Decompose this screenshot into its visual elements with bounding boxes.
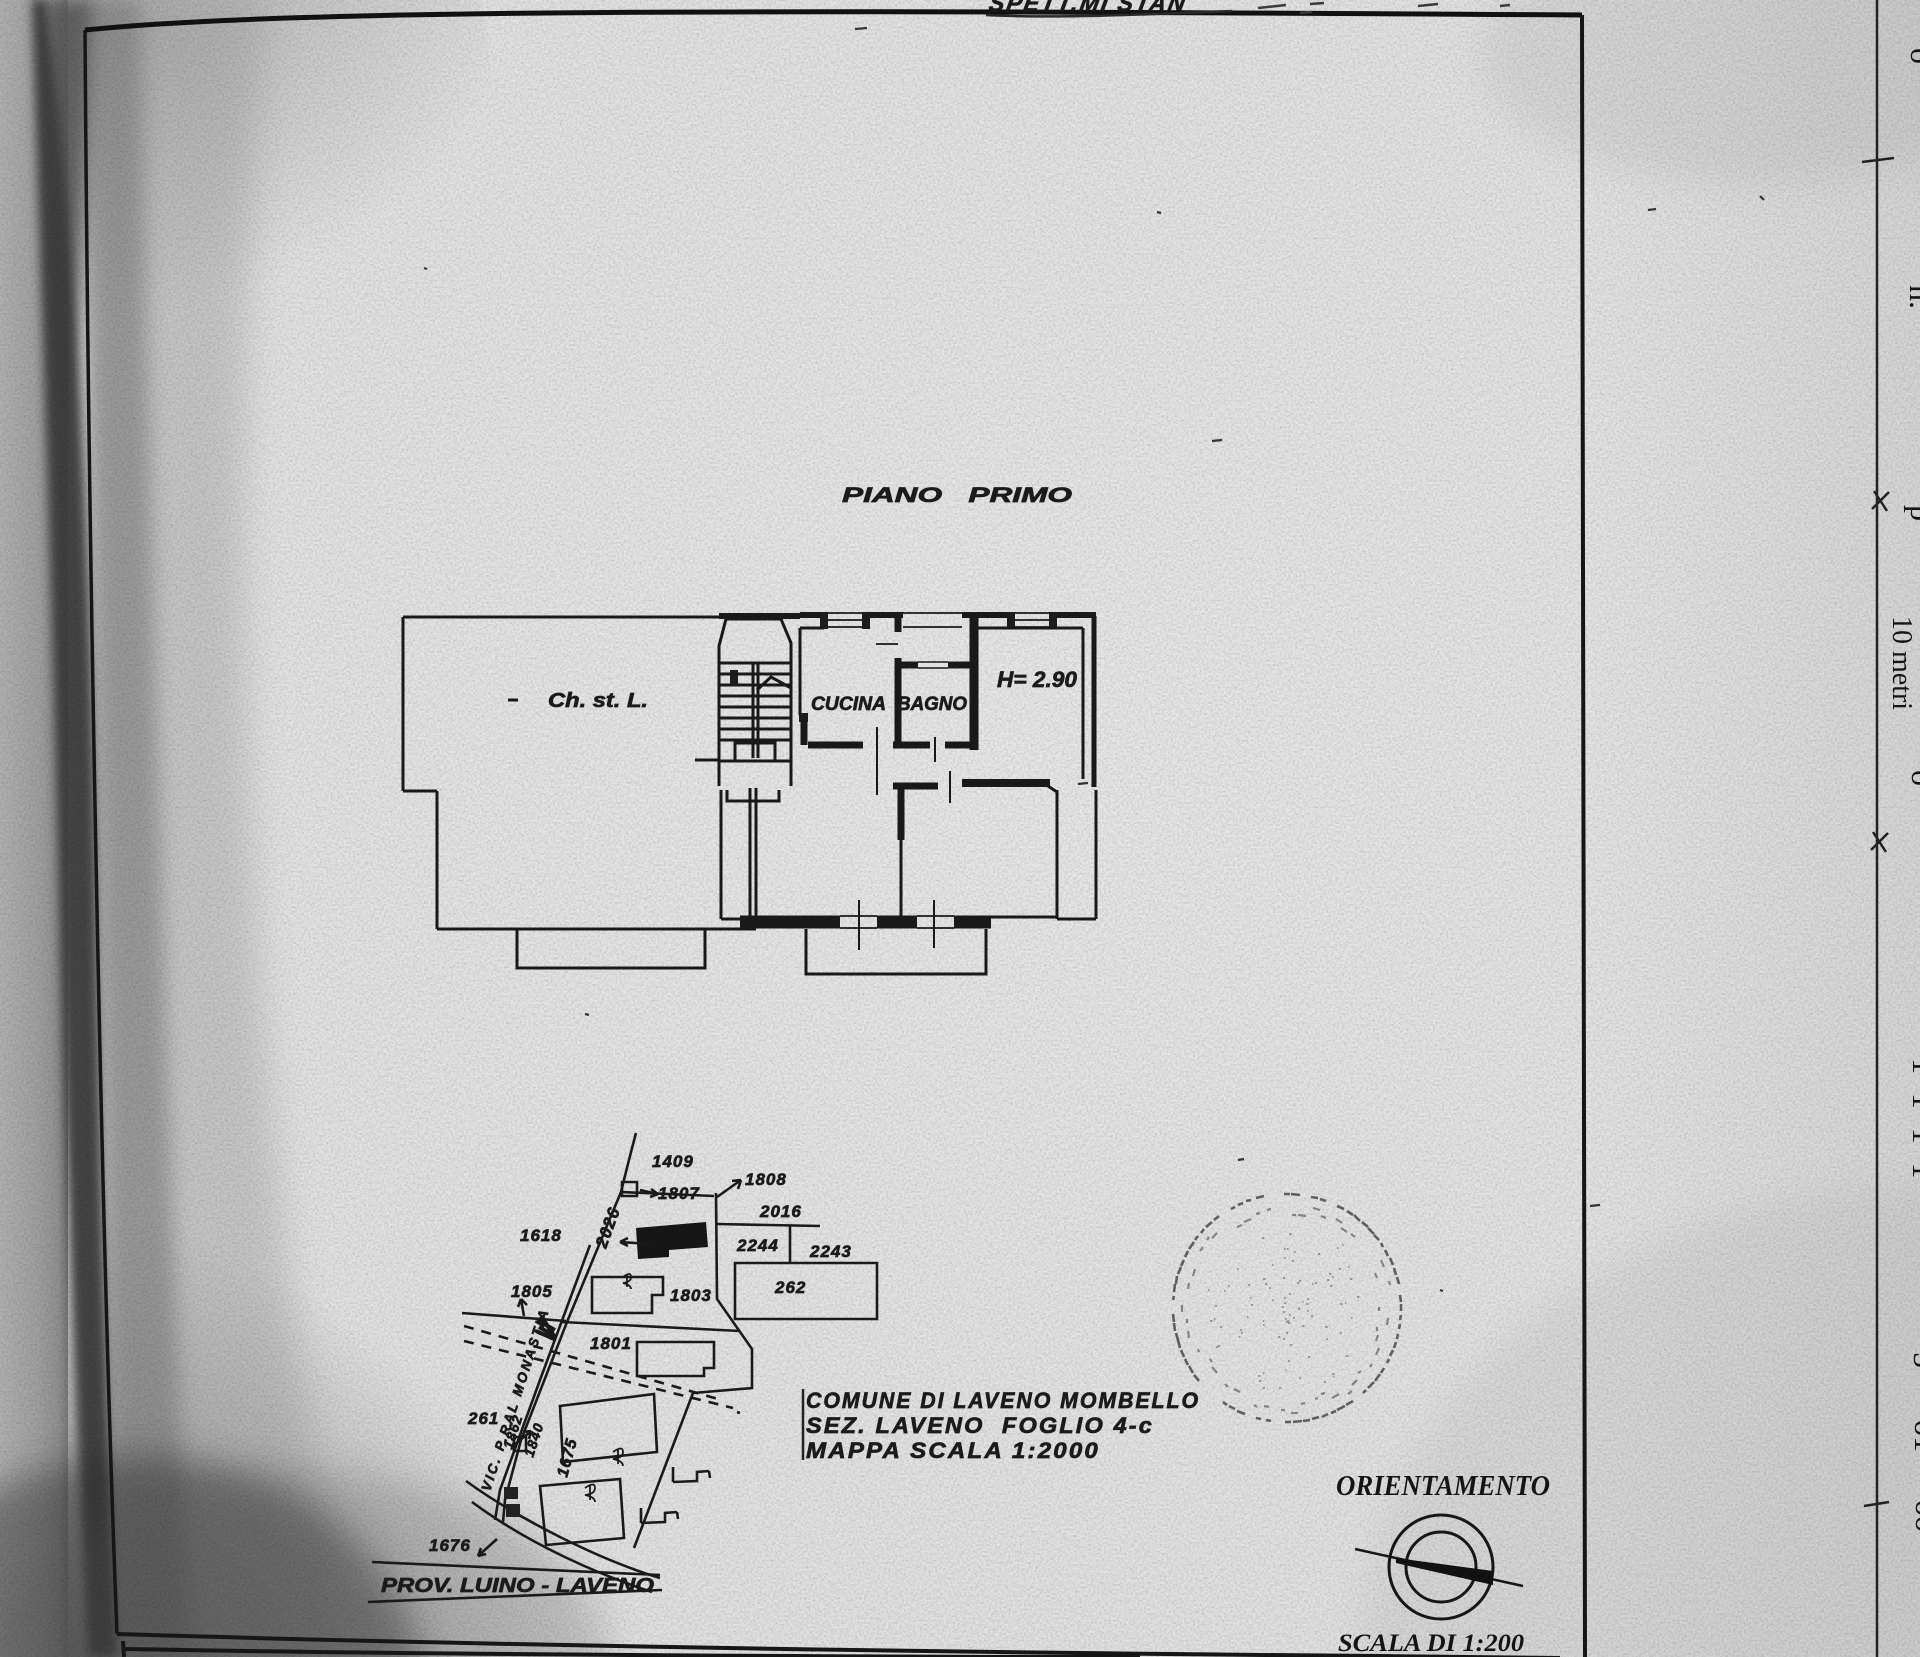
svg-text:oo: oo	[1909, 1500, 1920, 1532]
svg-text:1805: 1805	[511, 1282, 553, 1301]
svg-text:1676: 1676	[429, 1536, 471, 1555]
svg-text:PIANO PRIMO: PIANO PRIMO	[842, 484, 1072, 507]
svg-text:PROV. LUINO - LAVENO: PROV. LUINO - LAVENO	[381, 1575, 655, 1597]
svg-text:5: 5	[1907, 1352, 1920, 1368]
svg-text:1801: 1801	[590, 1334, 632, 1353]
svg-text:CUCINA: CUCINA	[811, 694, 886, 715]
svg-text:2244: 2244	[736, 1236, 779, 1255]
svg-text:o1: o1	[1908, 1420, 1920, 1452]
svg-text:MAPPA SCALA 1:2000: MAPPA SCALA 1:2000	[806, 1438, 1100, 1463]
svg-text:261: 261	[467, 1409, 499, 1428]
svg-text:H= 2.90: H= 2.90	[997, 667, 1078, 692]
svg-text:2016: 2016	[759, 1202, 802, 1221]
svg-text:BAGNO: BAGNO	[897, 694, 967, 715]
svg-text:10 metri: 10 metri	[1886, 616, 1917, 710]
svg-text:1409: 1409	[652, 1152, 694, 1171]
svg-text:1111: 1111	[1906, 1058, 1920, 1198]
svg-text:SEZ. LAVENO FOGLIO 4-c: SEZ. LAVENO FOGLIO 4-c	[806, 1413, 1154, 1438]
svg-text:2243: 2243	[809, 1242, 852, 1261]
svg-text:Ch. st. L.: Ch. st. L.	[548, 690, 648, 712]
svg-text:SCALA DI 1:200: SCALA DI 1:200	[1338, 1630, 1525, 1657]
svg-text:o: o	[1905, 770, 1920, 786]
svg-text:o: o	[1904, 48, 1920, 64]
svg-text:1807: 1807	[658, 1184, 700, 1203]
svg-text:n.: n.	[1903, 285, 1920, 309]
svg-text:1618: 1618	[520, 1226, 562, 1245]
svg-text:262: 262	[774, 1278, 806, 1297]
svg-text:1803: 1803	[670, 1286, 712, 1305]
svg-text:1808: 1808	[745, 1170, 787, 1189]
svg-text:p: p	[1904, 505, 1920, 521]
svg-text:COMUNE DI LAVENO MOMBELLO: COMUNE DI LAVENO MOMBELLO	[806, 1388, 1200, 1413]
svg-text:ORIENTAMENTO: ORIENTAMENTO	[1336, 1471, 1550, 1502]
